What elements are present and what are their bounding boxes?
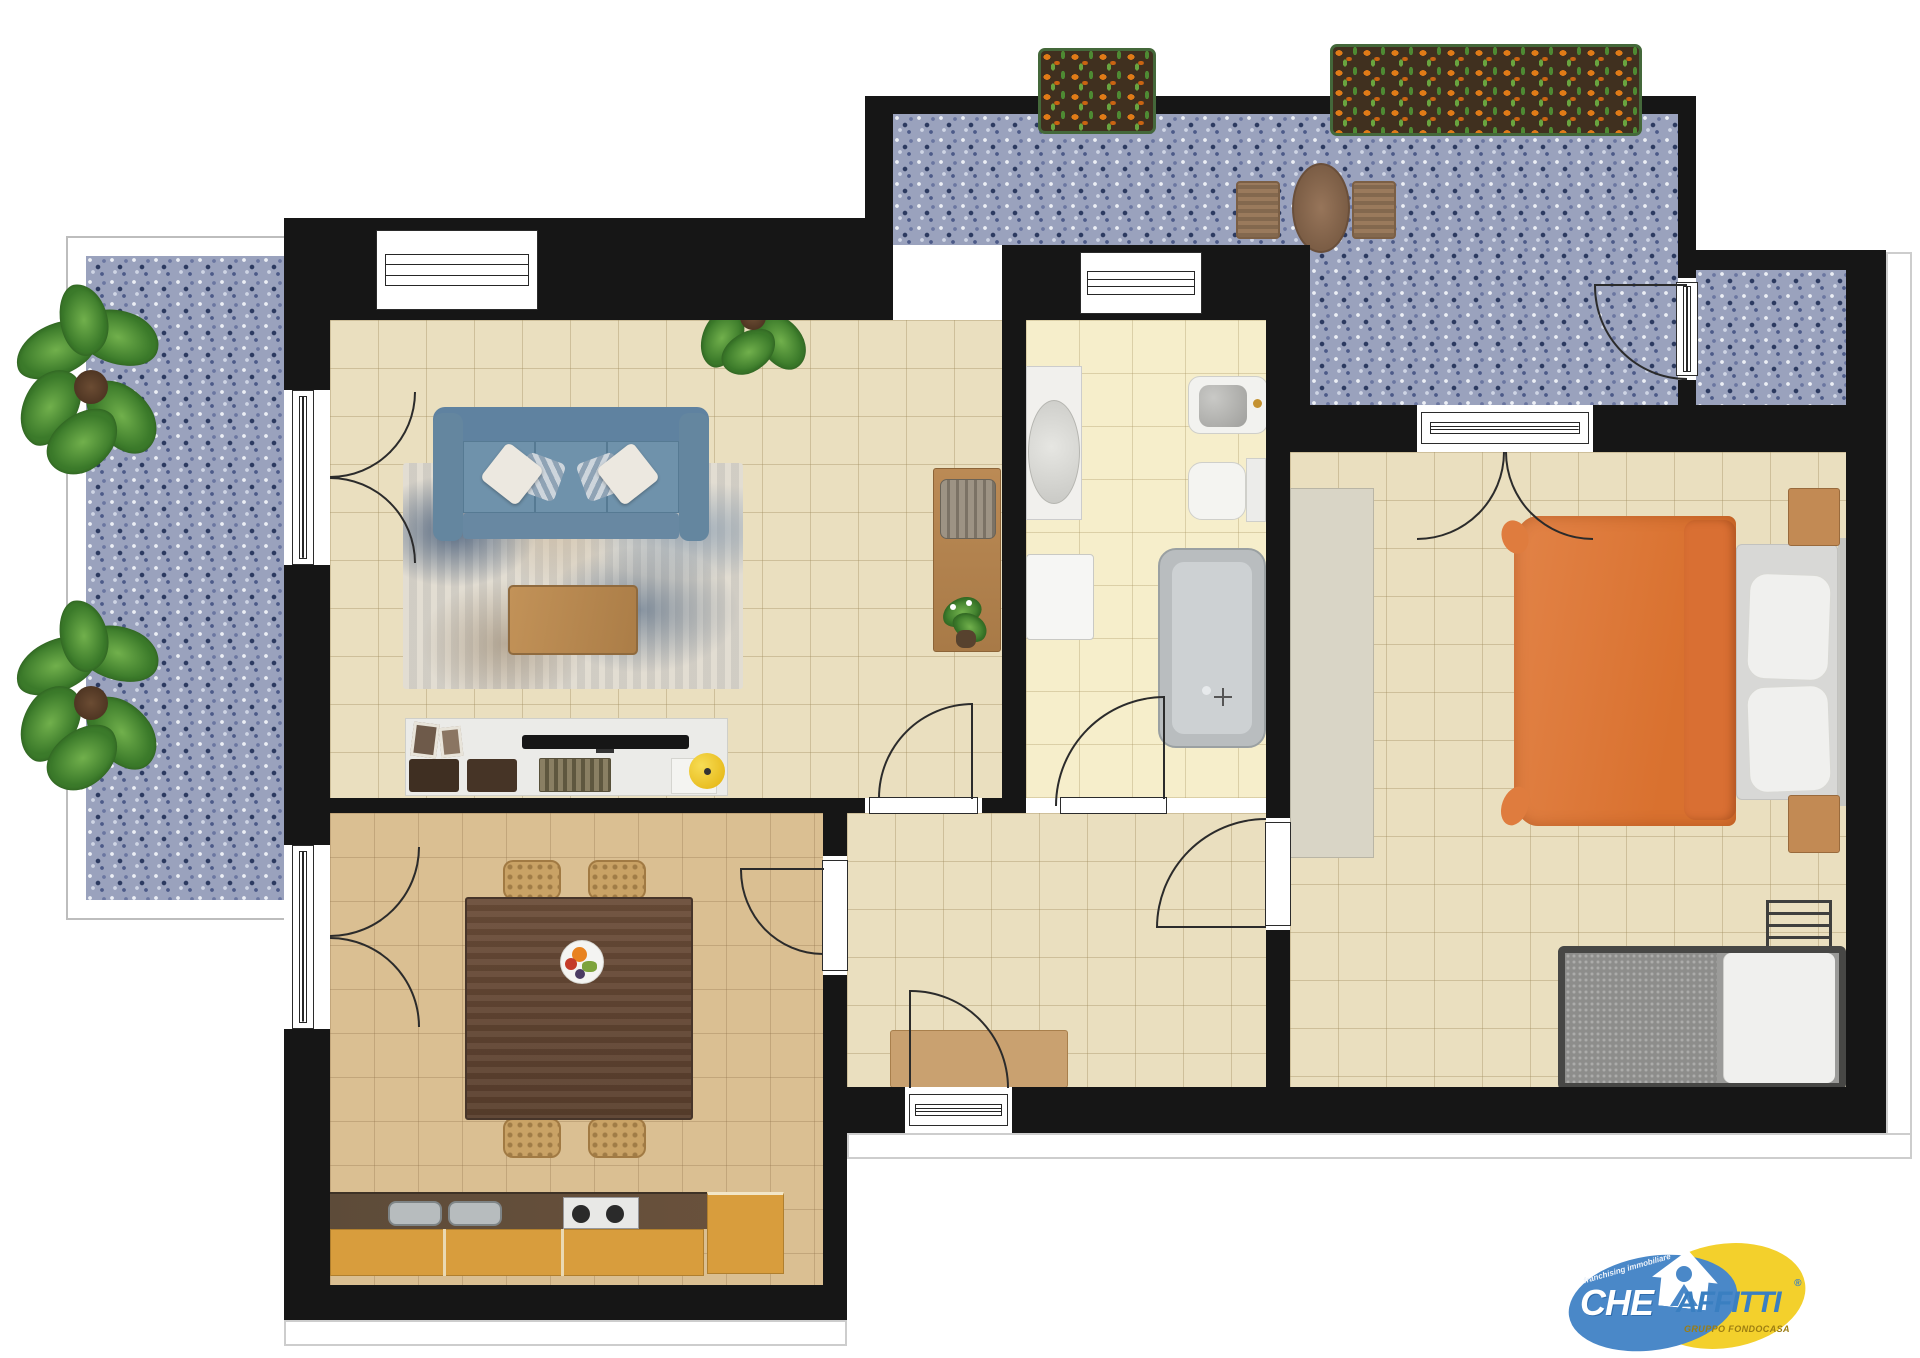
headboard — [1838, 538, 1846, 806]
kitchen-sink-basin — [448, 1201, 502, 1226]
dining-chair — [588, 1118, 646, 1158]
wall-west — [284, 218, 330, 1320]
sofa-arm-right — [679, 413, 709, 541]
duvet-edge-roll — [1684, 520, 1736, 820]
floor-plan: franchising immobiliare CHE AFFITTI ® GR… — [0, 0, 1920, 1358]
washing-machine — [1026, 554, 1094, 640]
bed-pillow — [1746, 685, 1832, 794]
nightstand — [1788, 795, 1840, 853]
dining-hall-door-frame — [822, 860, 848, 971]
cabinet-divider — [561, 1229, 564, 1276]
balcony-plant — [10, 296, 166, 474]
hob-burner — [606, 1205, 624, 1223]
sofa-arm-left — [433, 413, 463, 541]
terrace-table — [1292, 163, 1350, 253]
hob-burner — [572, 1205, 590, 1223]
tub-drain — [1202, 686, 1211, 695]
living-balcony-door-frame — [292, 390, 314, 565]
coffee-table — [508, 585, 638, 655]
wall-bath-east — [1266, 245, 1290, 1087]
cabinet-divider — [443, 1229, 446, 1276]
tv-stand — [596, 749, 614, 753]
logo-word-affitti: AFFITTI — [1676, 1286, 1781, 1320]
wall-east — [1846, 250, 1886, 1133]
dining-table — [465, 897, 693, 1120]
dining-balcony-door-frame — [292, 845, 314, 1029]
wall-dining-bottom — [284, 1285, 847, 1320]
tub-faucet — [1214, 696, 1232, 698]
living-window — [376, 230, 538, 310]
flower-box — [1330, 44, 1642, 136]
logo-word-che: CHE — [1580, 1282, 1653, 1324]
kitchen-sink-basin — [388, 1201, 442, 1226]
wall-living-east — [1002, 320, 1026, 813]
bath-sink — [1028, 400, 1080, 504]
dining-chair — [503, 860, 561, 900]
toilet-tank — [1246, 458, 1266, 522]
bidet — [1188, 376, 1268, 434]
bedroom-terrace-door-frame — [1421, 412, 1589, 444]
storage-box — [467, 759, 517, 792]
flower-box — [1038, 48, 1156, 134]
sofa-seat-front — [463, 513, 679, 539]
picture-frame — [438, 726, 463, 758]
mat-bottom-right — [847, 1133, 1912, 1159]
plant-pot — [74, 370, 108, 404]
single-bed — [1558, 946, 1846, 1090]
plant-pot — [74, 686, 108, 720]
single-bed-blanket — [1565, 953, 1717, 1083]
bedroom-door-frame — [1265, 822, 1291, 926]
kitchen-hob — [563, 1197, 639, 1229]
terrace-storage-floor — [1696, 270, 1846, 406]
dining-chair — [588, 860, 646, 900]
wall-stub — [1290, 320, 1310, 406]
single-bed-pillow — [1723, 953, 1835, 1083]
slat-basket — [539, 758, 611, 792]
tv — [522, 735, 689, 749]
wardrobe — [1290, 488, 1374, 858]
desk-chair — [940, 479, 996, 539]
radiator — [1766, 900, 1832, 948]
fruit-red — [565, 958, 577, 970]
fruit-grapes — [582, 961, 597, 972]
terrace-chair — [1352, 181, 1396, 239]
plant-pot — [956, 630, 976, 648]
desk-plant — [940, 594, 990, 652]
storage-box — [409, 759, 459, 792]
logo-person-icon — [1676, 1266, 1692, 1282]
bathroom-window — [1080, 252, 1202, 314]
agency-logo: franchising immobiliare CHE AFFITTI ® GR… — [1568, 1240, 1808, 1356]
kitchen-cabinets — [330, 1229, 704, 1276]
tv-sideboard — [405, 718, 728, 796]
sofa — [433, 407, 709, 547]
bathtub — [1158, 548, 1266, 748]
toilet — [1188, 462, 1246, 520]
dining-chair — [503, 1118, 561, 1158]
picture-frame — [410, 722, 440, 759]
terrace-chair — [1236, 181, 1280, 239]
fruit-dark — [575, 969, 585, 979]
bidet-tap — [1253, 399, 1262, 408]
living-hall-door-frame — [869, 797, 978, 814]
mat-bottom-left — [284, 1320, 847, 1346]
entrance-door-frame — [909, 1094, 1008, 1126]
kitchen-tall-cabinet — [707, 1192, 784, 1274]
mat-right — [1886, 252, 1912, 1136]
vase-center — [704, 768, 711, 775]
wall-terrace-west — [865, 96, 893, 320]
logo-registered: ® — [1794, 1278, 1800, 1289]
balcony-plant — [10, 612, 166, 790]
bed-pillow — [1746, 573, 1832, 682]
logo-subtitle: GRUPPO FONDOCASA — [1684, 1324, 1790, 1334]
nightstand — [1788, 488, 1840, 546]
